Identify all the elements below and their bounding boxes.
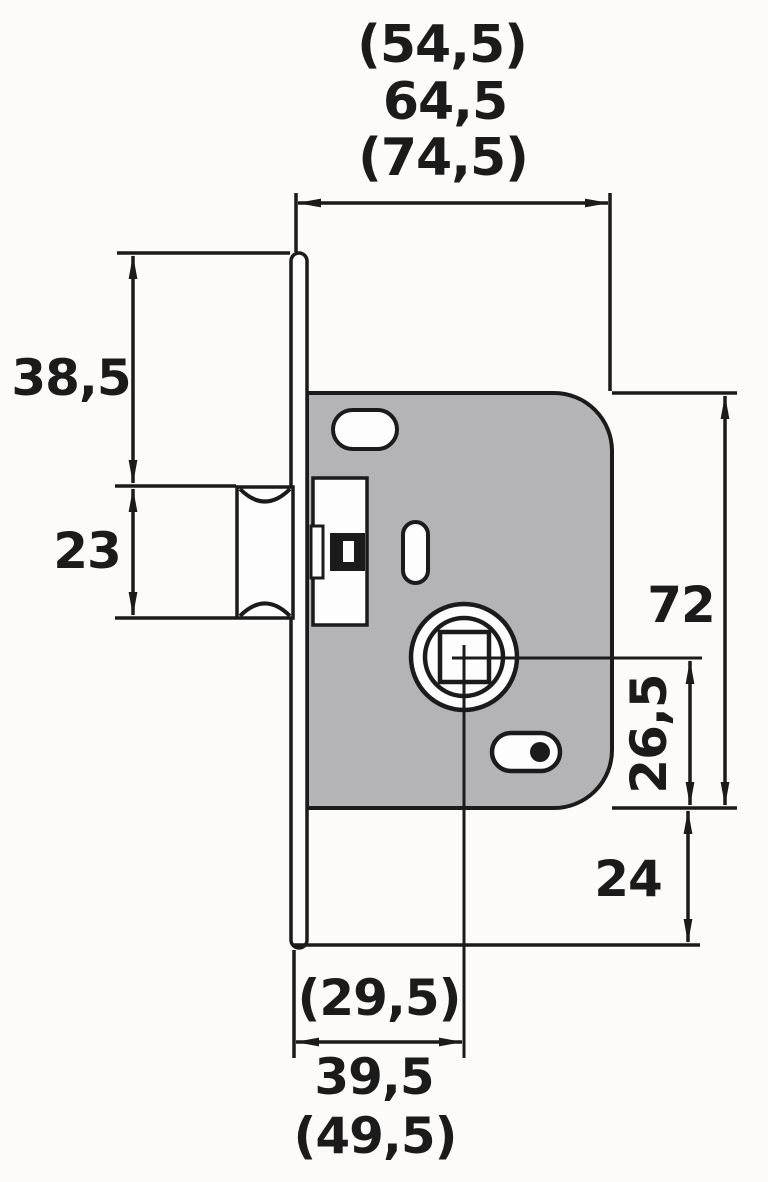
dim-label-top-width-variant-large: (74,5) <box>358 132 528 184</box>
fixing-pin-dot <box>530 742 550 762</box>
dim-label-backset-variant-large: (49,5) <box>293 1111 456 1161</box>
latch-bolt-head <box>237 487 293 618</box>
dim-label-backset-main: 39,5 <box>314 1052 433 1102</box>
bolt-spring-clip <box>311 526 323 578</box>
dim-label-right-spindle-offset: 26,5 <box>624 674 674 793</box>
lock-dimension-drawing: (54,5) 64,5 (74,5) 38,5 23 72 26,5 24 (2… <box>0 0 768 1182</box>
dim-label-left-upper-height: 38,5 <box>11 353 130 403</box>
dim-label-right-body-height: 72 <box>647 580 715 630</box>
fixing-hole-top <box>333 410 397 449</box>
slot-hole-middle <box>403 522 428 583</box>
bolt-stop-notch <box>343 541 354 562</box>
dim-label-right-below-body: 24 <box>594 854 662 904</box>
dim-label-left-bolt-height: 23 <box>53 526 121 576</box>
dim-label-top-width-variant-small: (54,5) <box>357 19 527 71</box>
dim-label-backset-variant-small: (29,5) <box>297 973 460 1023</box>
dim-label-top-width-main: 64,5 <box>383 76 507 128</box>
